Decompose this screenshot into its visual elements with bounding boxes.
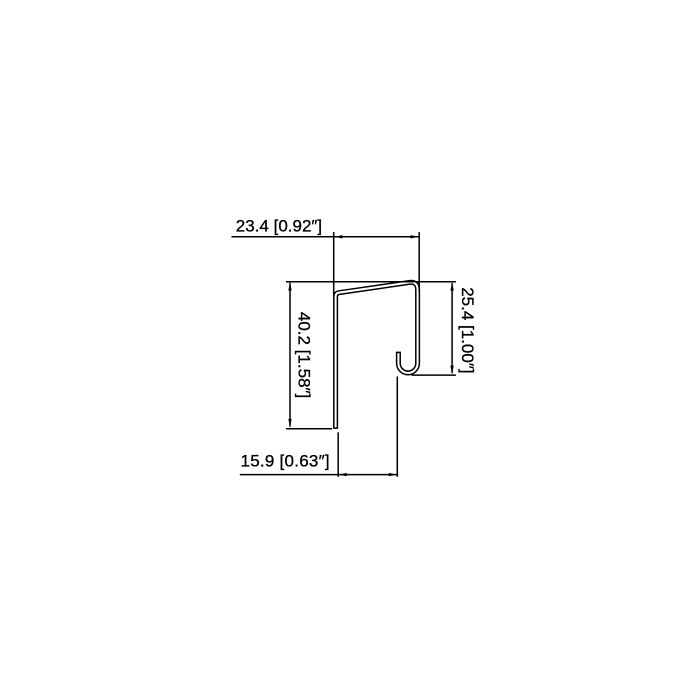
svg-text:23.4 [0.92″]: 23.4 [0.92″] — [236, 216, 322, 235]
svg-text:40.2 [1.58″]: 40.2 [1.58″] — [294, 312, 313, 398]
svg-text:25.4 [1.00″]: 25.4 [1.00″] — [458, 287, 477, 373]
svg-text:15.9 [0.63″]: 15.9 [0.63″] — [241, 452, 330, 471]
